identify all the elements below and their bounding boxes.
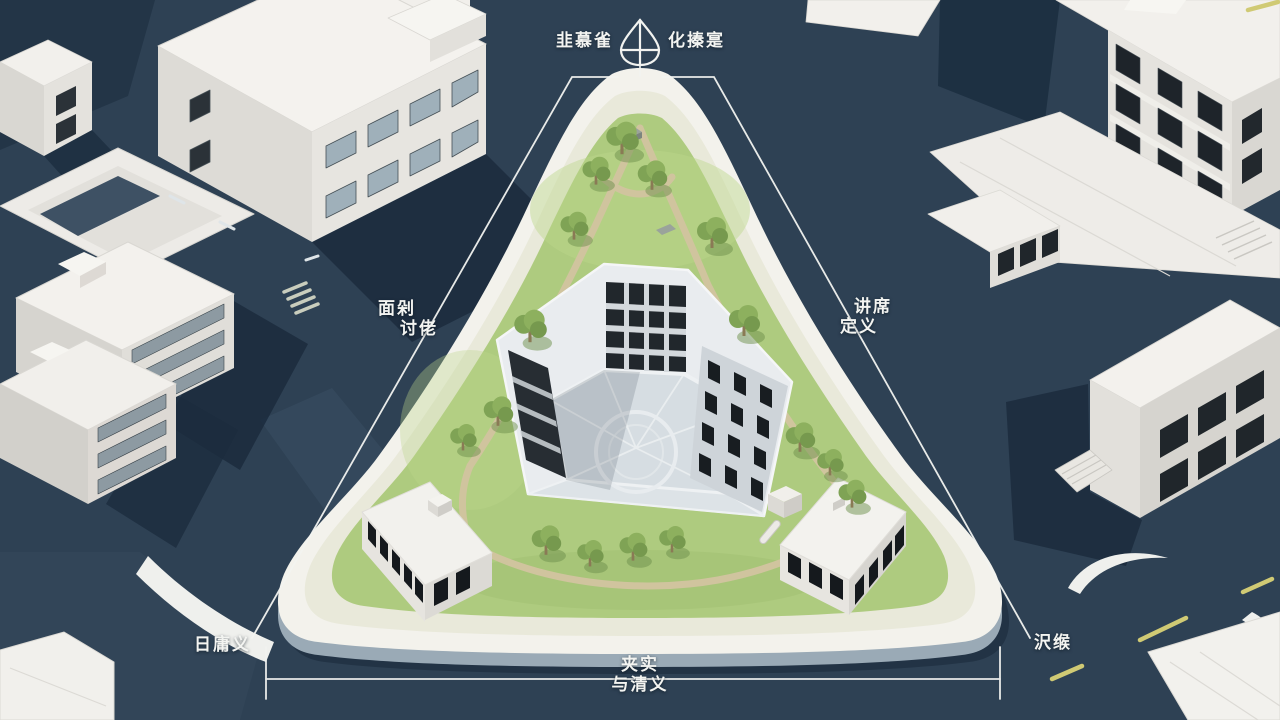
architectural-site-diagram: { "annotations": { "top_left": "韭慕雀", "t… bbox=[0, 0, 1280, 720]
label-bottom-left: 日庸义 bbox=[194, 636, 251, 656]
label-left-line1: 面剁 bbox=[378, 299, 416, 319]
label-left-line2: 讨佬 bbox=[400, 320, 438, 340]
label-top-left: 韭慕雀 bbox=[556, 32, 613, 52]
label-right: 讲席 定义 bbox=[840, 298, 892, 337]
label-right-line2: 定义 bbox=[840, 318, 892, 338]
label-bottom-right: 沢缑 bbox=[1034, 634, 1072, 654]
label-right-line1: 讲席 bbox=[854, 297, 892, 317]
label-bottom-center-line1: 夹实 bbox=[621, 655, 659, 675]
label-bottom-center-line2: 与清义 bbox=[580, 676, 700, 696]
label-top-right: 化搸寔 bbox=[668, 32, 725, 52]
label-bottom-center: 夹实 与清义 bbox=[580, 656, 700, 695]
facade-north-wing bbox=[606, 282, 686, 372]
scene-canvas bbox=[0, 0, 1280, 720]
label-left: 面剁 讨佬 bbox=[378, 300, 438, 339]
